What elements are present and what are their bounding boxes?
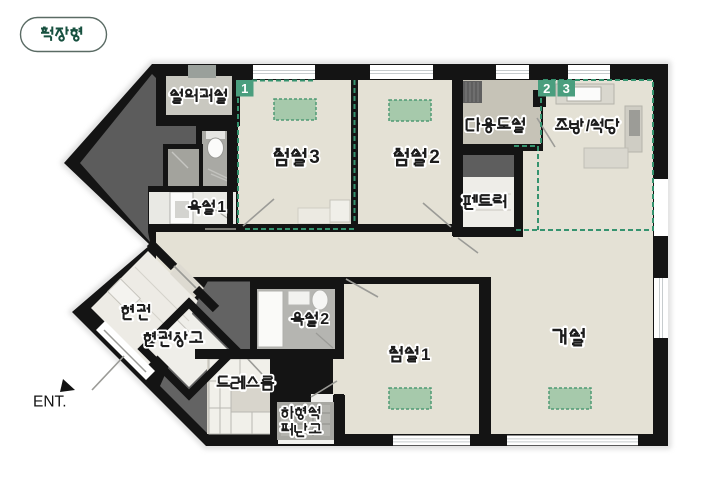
svg-text:2: 2: [320, 311, 329, 328]
svg-text:/: /: [586, 118, 591, 135]
svg-text:1: 1: [421, 345, 430, 364]
svg-text:3: 3: [563, 81, 570, 96]
svg-text:ENT.: ENT.: [33, 394, 67, 411]
svg-text:2: 2: [543, 81, 550, 96]
svg-text:3: 3: [309, 147, 320, 168]
svg-text:1: 1: [241, 81, 248, 96]
svg-text:2: 2: [429, 147, 440, 168]
svg-text:1: 1: [217, 199, 226, 216]
